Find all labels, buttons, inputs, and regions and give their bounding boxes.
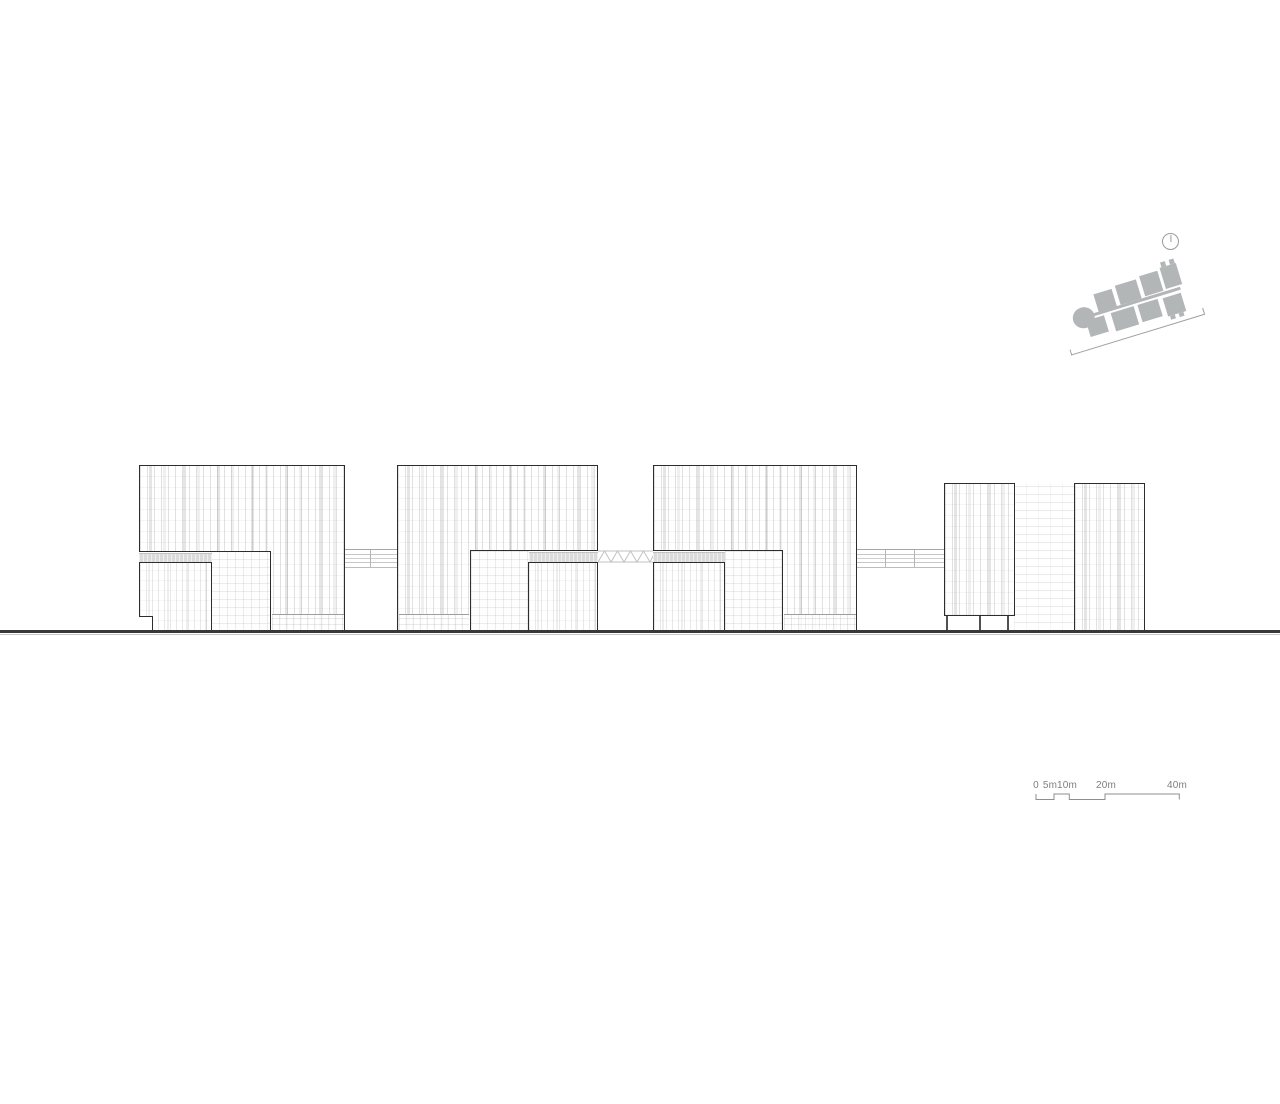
bridge-mullion [370, 550, 371, 567]
building-a-podium-grid [272, 614, 344, 631]
north-arrow-icon [1162, 233, 1179, 250]
elevation-sheet: 0 5m 10m 20m 40m [0, 0, 1280, 1104]
ground-line [0, 630, 1280, 633]
building-b-annex [528, 562, 598, 632]
north-arrow-needle [1170, 235, 1171, 242]
building-d-tower-right [1074, 483, 1145, 632]
site-footprint-tab [1179, 312, 1185, 317]
building-d-tower-left [944, 483, 1015, 616]
site-key-plan [1068, 255, 1198, 360]
building-b-curtainwall-grid [471, 551, 529, 632]
link-bridge-2 [857, 549, 944, 568]
site-footprint-tab [1170, 314, 1176, 319]
pilotis-column [946, 616, 948, 631]
site-baseline-tick [1070, 350, 1073, 356]
site-footprint [1086, 315, 1109, 337]
site-key-strip [1066, 261, 1197, 355]
truss-zigzag-icon [598, 549, 653, 564]
building-c-curtainwall-grid [725, 551, 782, 632]
scale-bar-profile [1030, 789, 1190, 803]
building-c-podium-grid [784, 614, 856, 631]
bridge-mullion [914, 550, 915, 567]
building-d-background-block [1014, 483, 1074, 631]
building-b-podium-grid [399, 614, 469, 631]
building-a-curtainwall-grid [211, 552, 270, 632]
site-baseline-tick [1202, 308, 1205, 314]
building-c-annex [653, 562, 725, 632]
site-footprint [1111, 306, 1140, 331]
truss-bridge [598, 549, 653, 564]
site-footprint [1137, 299, 1162, 322]
link-bridge-1 [345, 549, 397, 568]
pilotis-column [979, 616, 981, 631]
ground-shadow-line [0, 634, 1280, 635]
pilotis-column [1007, 616, 1009, 631]
bridge-mullion [885, 550, 886, 567]
